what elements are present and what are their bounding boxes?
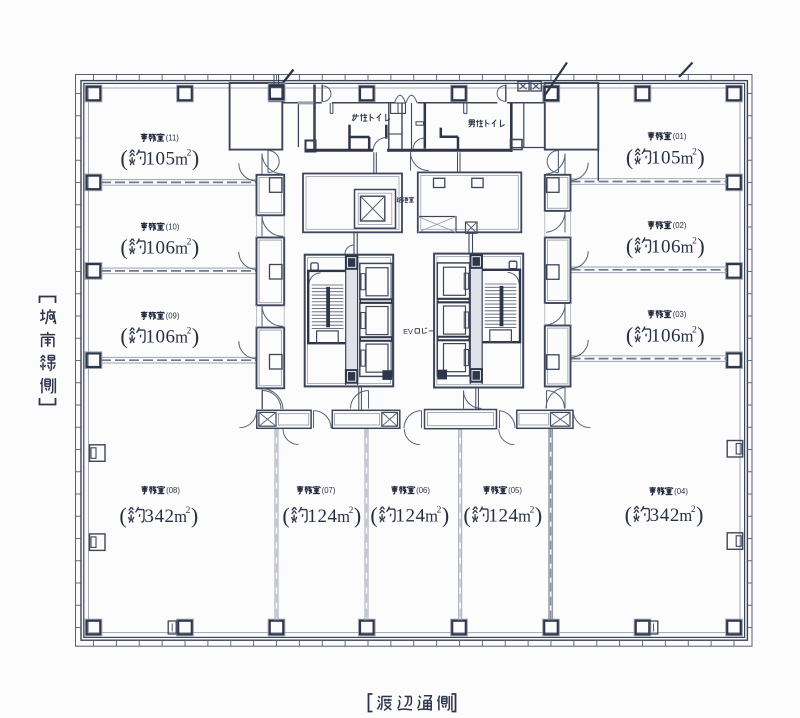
svg-text:(09): (09) [166, 312, 180, 321]
svg-text:124: 124 [307, 506, 337, 527]
svg-text:2: 2 [437, 506, 442, 516]
svg-text:342: 342 [144, 506, 174, 527]
svg-text:2: 2 [187, 149, 192, 159]
svg-text:105: 105 [651, 148, 681, 169]
svg-text:(11): (11) [166, 134, 180, 143]
svg-text:2: 2 [187, 238, 192, 248]
svg-text:(10): (10) [166, 223, 180, 232]
svg-text:(05): (05) [508, 486, 522, 495]
svg-text:(01): (01) [673, 132, 687, 141]
svg-text:): ) [192, 234, 199, 259]
svg-text:(03): (03) [673, 310, 687, 319]
svg-text:2: 2 [349, 506, 354, 516]
svg-text:(07): (07) [322, 486, 336, 495]
svg-text:342: 342 [650, 505, 680, 526]
svg-text:(: ( [370, 502, 377, 527]
svg-text:(02): (02) [673, 221, 687, 230]
svg-text:(: ( [120, 234, 127, 259]
svg-text:2: 2 [530, 506, 535, 516]
svg-text:124: 124 [395, 506, 425, 527]
svg-text:(: ( [120, 145, 127, 170]
svg-text:(08): (08) [166, 486, 180, 495]
svg-text:): ) [192, 145, 199, 170]
svg-text:(: ( [626, 233, 633, 258]
svg-text:(06): (06) [416, 486, 430, 495]
svg-text:): ) [354, 503, 361, 528]
svg-text:(: ( [463, 502, 470, 527]
svg-text:2: 2 [187, 327, 192, 337]
svg-text:(: ( [282, 503, 289, 528]
svg-text:2: 2 [692, 237, 697, 247]
svg-text:): ) [697, 233, 704, 258]
svg-text:): ) [535, 502, 542, 527]
svg-text:106: 106 [651, 237, 681, 258]
svg-text:2: 2 [691, 505, 696, 515]
svg-text:): ) [192, 323, 199, 348]
svg-text:2: 2 [692, 326, 697, 336]
svg-text:(: ( [120, 323, 127, 348]
svg-text:(04): (04) [674, 487, 688, 496]
svg-text:106: 106 [145, 327, 175, 348]
svg-text:106: 106 [651, 326, 681, 347]
svg-text:): ) [697, 322, 704, 347]
svg-text:EV: EV [403, 327, 413, 336]
svg-text:2: 2 [186, 506, 191, 516]
svg-text:(: ( [625, 502, 632, 527]
svg-text:106: 106 [145, 238, 175, 259]
svg-text:(: ( [626, 144, 633, 169]
svg-text:): ) [697, 144, 704, 169]
svg-text:(: ( [626, 322, 633, 347]
svg-text:124: 124 [488, 506, 518, 527]
svg-text:105: 105 [145, 149, 175, 170]
svg-text:): ) [442, 502, 449, 527]
svg-text:): ) [191, 503, 198, 528]
svg-text:(: ( [119, 503, 126, 528]
svg-text:2: 2 [692, 148, 697, 158]
svg-text:): ) [696, 502, 703, 527]
